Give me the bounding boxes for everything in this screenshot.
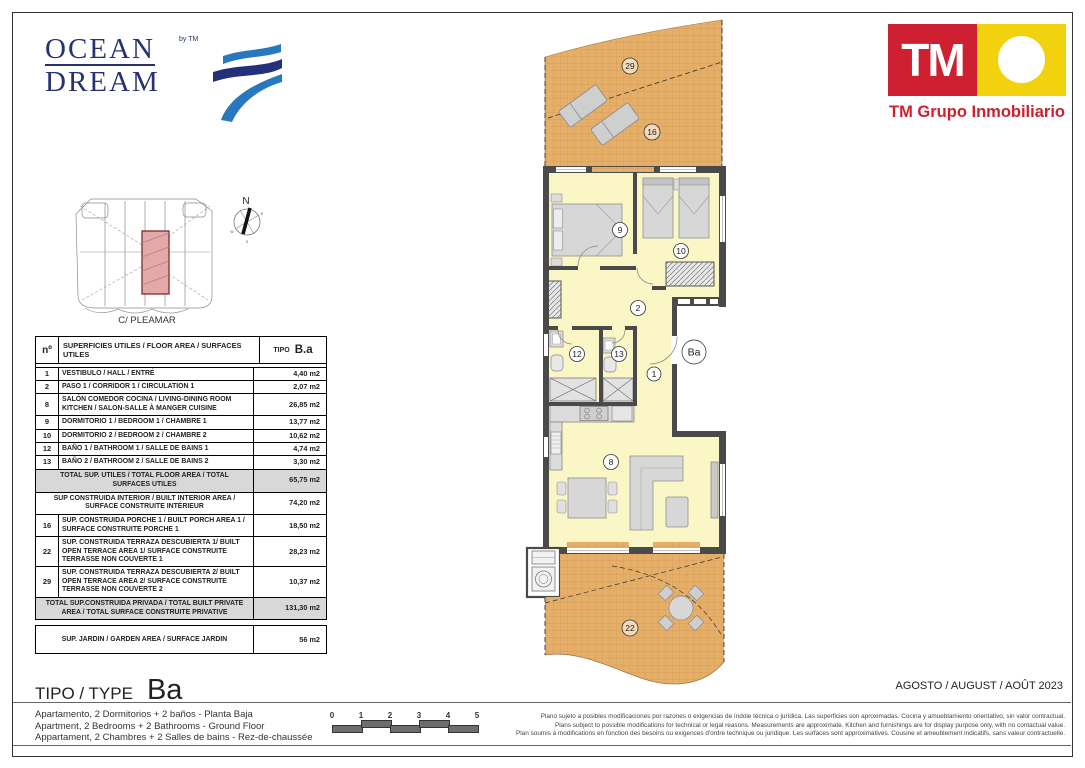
date-label: AGOSTO / AUGUST / AOÛT 2023 [895,680,1063,692]
row-value: 65,75 m2 [253,470,326,492]
room-label-9: 9 [618,225,623,235]
room-label-29: 29 [625,61,635,71]
tm-sun-circle-icon [998,36,1045,83]
tm-company-name: TM Grupo Inmobiliario [888,103,1066,122]
area-table-body: 1VESTIBULO / HALL / ENTRÉ4,40 m22PASO 1 … [36,368,326,620]
row-description: TOTAL SUP. UTILES / TOTAL FLOOR AREA / T… [36,470,253,492]
top-terrace: 29 16 [545,20,722,170]
dream-word: DREAM [45,66,160,98]
dining-table [568,478,606,518]
row-number: 16 [36,515,59,536]
row-number: 13 [36,456,59,468]
description-line: Appartament, 2 Chambres + 2 Salles de ba… [35,732,313,744]
row-description: SUP. CONSTRUIDA TERRAZA DESCUBIERTA 1/ B… [59,537,253,566]
description-line: Apartamento, 2 Dormitorios + 2 baños - P… [35,709,313,721]
table-row: 2PASO 1 / CORRIDOR 1 / CIRCULATION 12,07… [36,381,326,394]
row-value: 131,30 m2 [253,598,326,620]
row-number: 1 [36,368,59,380]
row-value: 74,20 m2 [253,493,326,515]
row-number: 12 [36,443,59,455]
row-value: 2,07 m2 [253,381,326,393]
row-description: DORMITORIO 2 / BEDROOM 2 / CHAMBRE 2 [59,430,253,442]
row-value: 26,85 m2 [253,394,326,415]
garden-desc: SUP. JARDIN / GARDEN AREA / SURFACE JARD… [36,626,253,653]
room-label-1: 1 [652,369,657,379]
type-code-label: B.a [295,344,313,356]
bedroom1-furniture [551,194,622,266]
table-row: TOTAL SUP. UTILES / TOTAL FLOOR AREA / T… [36,470,326,493]
row-number: 8 [36,394,59,415]
scale-segment [390,725,421,733]
col-type-header: TIPO B.a [259,337,326,363]
scale-segment [332,725,363,733]
scale-number: 3 [414,711,424,720]
row-value: 10,62 m2 [253,430,326,442]
compass-e: e [261,211,264,216]
scale-number: 4 [443,711,453,720]
unit-description: Apartamento, 2 Dormitorios + 2 baños - P… [35,709,313,744]
area-table: nº SUPERFICIES UTILES / FLOOR AREA / SUR… [35,336,327,654]
room-label-16: 16 [647,127,657,137]
row-value: 10,37 m2 [253,567,326,596]
unit-type-label: Ba [688,347,701,359]
description-line: Apartment, 2 Bedrooms + 2 Bathrooms - Gr… [35,721,313,733]
room-label-10: 10 [676,246,686,256]
floorplan-sheet: OCEAN DREAM by TM TM TM Grupo Inmobiliar… [0,0,1085,768]
table-row: 13BAÑO 2 / BATHROOM 2 / SALLE DE BAINS 2… [36,456,326,469]
legal-disclaimer: Plano sujeto a posibles modificaciones p… [516,713,1065,739]
armchair [666,497,688,527]
table-row: 1VESTIBULO / HALL / ENTRÉ4,40 m2 [36,368,326,381]
row-description: SUP CONSTRUIDA INTERIOR / BUILT INTERIOR… [36,493,253,515]
site-plan: C/ PLEAMAR N e w s [58,186,293,336]
compass-icon: N e w s [230,196,263,244]
scale-number: 2 [385,711,395,720]
laundry-closet [527,548,560,597]
compass-w: w [230,229,234,234]
terrace-threshold [653,542,700,548]
scale-number: 0 [327,711,337,720]
scale-number: 5 [472,711,482,720]
row-value: 4,40 m2 [253,368,326,380]
scale-segment [448,725,479,733]
street-label: C/ PLEAMAR [118,315,176,326]
disclaimer-line: Plano sujeto a posibles modificaciones p… [516,713,1065,722]
row-number: 2 [36,381,59,393]
footer-divider-bottom [13,745,1071,746]
row-number: 22 [36,537,59,566]
row-description: BAÑO 1 / BATHROOM 1 / SALLE DE BAINS 1 [59,443,253,455]
garden-value: 56 m2 [253,626,326,653]
table-row: 9DORMITORIO 1 / BEDROOM 1 / CHAMBRE 113,… [36,416,326,429]
scale-segment [419,720,450,728]
bottom-terrace: 22 [545,554,724,684]
row-description: PASO 1 / CORRIDOR 1 / CIRCULATION 1 [59,381,253,393]
table-row: 22SUP. CONSTRUIDA TERRAZA DESCUBIERTA 1/… [36,537,326,567]
row-number: 9 [36,416,59,428]
tipo-label: TIPO [273,347,289,354]
compass-n: N [242,196,249,207]
table-row: 8SALÓN COMEDOR COCINA / LIVING-DINING RO… [36,394,326,416]
wardrobe [666,262,714,286]
table-row: SUP CONSTRUIDA INTERIOR / BUILT INTERIOR… [36,493,326,516]
table-row: 10DORMITORIO 2 / BEDROOM 2 / CHAMBRE 210… [36,430,326,443]
room-label-12: 12 [572,349,582,359]
table-row: 16SUP. CONSTRUIDA PORCHE 1 / BUILT PORCH… [36,515,326,537]
tm-logo: TM TM Grupo Inmobiliario [888,24,1066,122]
area-table-header: nº SUPERFICIES UTILES / FLOOR AREA / SUR… [36,337,326,364]
row-description: SALÓN COMEDOR COCINA / LIVING-DINING ROO… [59,394,253,415]
row-description: VESTIBULO / HALL / ENTRÉ [59,368,253,380]
col-number-header: nº [36,337,59,363]
floor-plan: 29 16 [488,14,804,694]
wave-icon [185,42,285,122]
room-label-2: 2 [636,303,641,313]
tv-sideboard [711,462,718,518]
row-value: 28,23 m2 [253,537,326,566]
ocean-dream-logo: OCEAN DREAM by TM [45,28,245,112]
highlighted-unit [142,231,169,294]
tm-logo-squares: TM [888,24,1066,96]
table-row: 29SUP. CONSTRUIDA TERRAZA DESCUBIERTA 2/… [36,567,326,597]
scale-number: 1 [356,711,366,720]
tipo-type-label: TIPO / TYPE [35,684,133,703]
row-value: 18,50 m2 [253,515,326,536]
scale-bar: 012345 [330,711,482,737]
disclaimer-line: Plans subject to possible modifications … [516,722,1065,731]
compass-s: s [246,239,249,244]
scale-segment [361,720,392,728]
footer-divider-top [13,702,1071,703]
row-value: 13,77 m2 [253,416,326,428]
room-label-22: 22 [625,623,635,633]
row-description: SUP. CONSTRUIDA TERRAZA DESCUBIERTA 2/ B… [59,567,253,596]
hall-closet [547,281,561,318]
room-label-8: 8 [609,457,614,467]
row-description: TOTAL SUP.CONSTRUIDA PRIVADA / TOTAL BUI… [36,598,253,620]
tm-yellow-square [977,24,1066,96]
table-row: 12BAÑO 1 / BATHROOM 1 / SALLE DE BAINS 1… [36,443,326,456]
ocean-dream-wordmark: OCEAN DREAM [45,34,160,99]
terrace-threshold [567,542,629,548]
row-number: 29 [36,567,59,596]
table-row: TOTAL SUP.CONSTRUIDA PRIVADA / TOTAL BUI… [36,598,326,620]
row-number: 10 [36,430,59,442]
row-description: SUP. CONSTRUIDA PORCHE 1 / BUILT PORCH A… [59,515,253,536]
row-description: DORMITORIO 1 / BEDROOM 1 / CHAMBRE 1 [59,416,253,428]
row-description: BAÑO 2 / BATHROOM 2 / SALLE DE BAINS 2 [59,456,253,468]
garden-row: SUP. JARDIN / GARDEN AREA / SURFACE JARD… [35,625,327,654]
col-desc-header: SUPERFICIES UTILES / FLOOR AREA / SURFAC… [59,337,259,363]
room-label-13: 13 [614,349,624,359]
porch-threshold [592,167,654,172]
disclaimer-line: Plan soumis à modifications en fonction … [516,730,1065,739]
row-value: 4,74 m2 [253,443,326,455]
row-value: 3,30 m2 [253,456,326,468]
ocean-word: OCEAN [45,34,155,66]
tm-red-square: TM [888,24,977,96]
